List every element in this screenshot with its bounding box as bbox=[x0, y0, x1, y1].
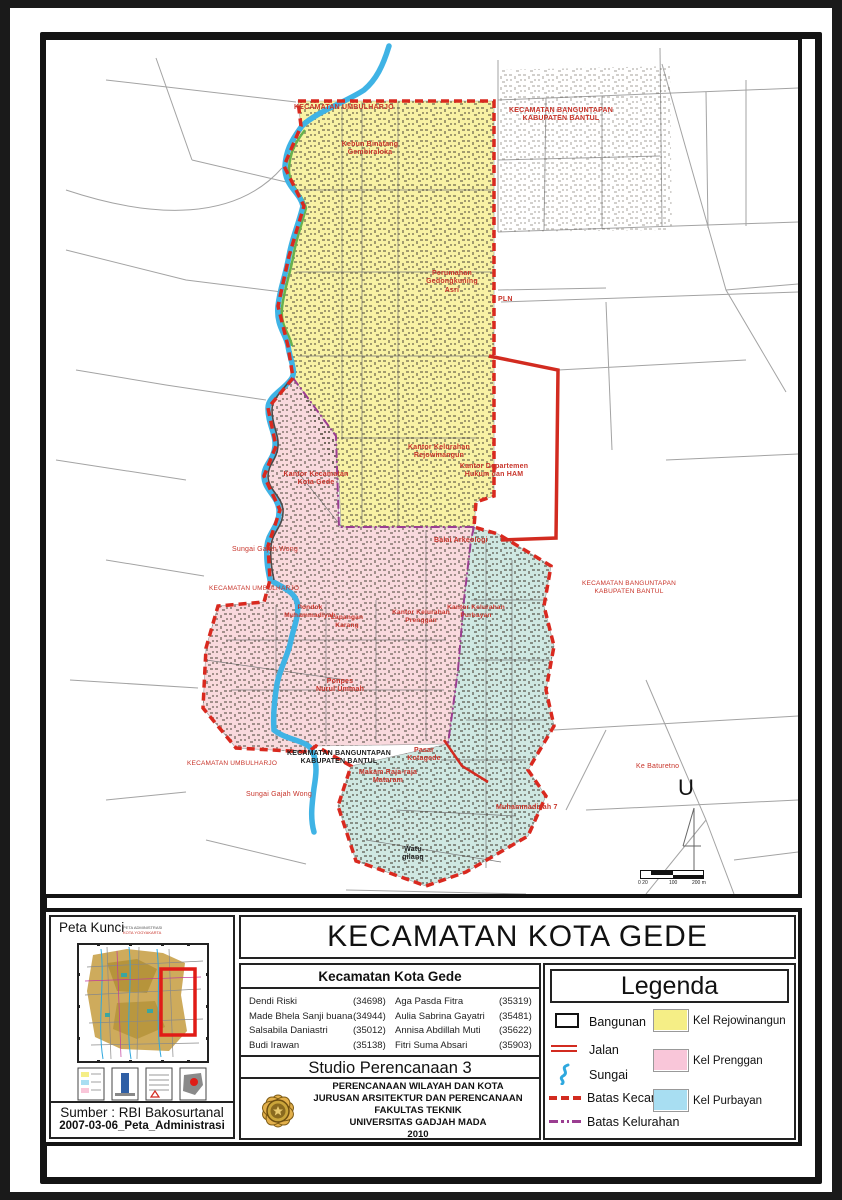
batas-kelurahan-symbol bbox=[549, 1120, 581, 1123]
legend-label-rejowinangun: Kel Rejowinangun bbox=[693, 1015, 786, 1027]
map-canvas: KECAMATAN UMBULHARJO KECAMATAN BANGUNTAP… bbox=[46, 40, 798, 894]
purbayan-swatch bbox=[653, 1089, 689, 1112]
student-id: (35481) bbox=[499, 1010, 541, 1025]
paper-sheet: KECAMATAN UMBULHARJO KECAMATAN BANGUNTAP… bbox=[10, 8, 832, 1192]
map-label: Kantor Kelurahan Prenggan bbox=[392, 609, 450, 625]
map-label: KECAMATAN UMBULHARJO bbox=[294, 104, 394, 112]
map-label: KECAMATAN BANGUNTAPAN KABUPATEN BANTUL bbox=[582, 580, 676, 596]
student-name: Aulia Sabrina Gayatri bbox=[395, 1010, 499, 1025]
student-id: (35622) bbox=[499, 1024, 541, 1039]
map-label: Sungai Gajah Wong bbox=[232, 546, 298, 554]
legend-label-batas-kelurahan: Batas Kelurahan bbox=[587, 1115, 679, 1129]
map-label: KECAMATAN BANGUNTAPAN KABUPATEN BANTUL bbox=[287, 750, 391, 767]
map-label: PLN bbox=[498, 296, 513, 304]
map-label: KECAMATAN UMBULHARJO bbox=[209, 585, 299, 593]
north-arrow bbox=[683, 808, 701, 872]
map-label: Pasar Kotagede bbox=[407, 747, 441, 764]
group-title: Kecamatan Kota Gede bbox=[241, 965, 539, 989]
student-name: Aga Pasda Fitra bbox=[395, 995, 499, 1010]
prenggan-swatch bbox=[653, 1049, 689, 1072]
student-id: (35012) bbox=[353, 1024, 395, 1039]
map-label: KECAMATAN UMBULHARJO bbox=[187, 760, 277, 768]
map-area: KECAMATAN UMBULHARJO KECAMATAN BANGUNTAP… bbox=[42, 36, 802, 898]
map-label: Kantor Kelurahan Purbayan bbox=[447, 604, 505, 620]
legend-label-jalan: Jalan bbox=[589, 1043, 619, 1057]
batas-kecamatan-symbol bbox=[549, 1096, 581, 1100]
student-name: Salsabila Daniastri bbox=[249, 1024, 353, 1039]
map-title: KECAMATAN KOTA GEDE bbox=[327, 920, 708, 954]
key-map-thumbnails bbox=[77, 1067, 209, 1101]
map-label: Makam Raja-raja Mataram bbox=[359, 769, 417, 786]
map-label: Pondok Muhammadiyah bbox=[284, 604, 336, 620]
student-name: Budi Irawan bbox=[249, 1039, 353, 1054]
legend-label-prenggan: Kel Prenggan bbox=[693, 1055, 763, 1067]
key-map-subtitle: PETA ADMINISTRASI KOTA YOGYAKARTA bbox=[123, 926, 162, 936]
legend-header: Legenda bbox=[550, 969, 789, 1003]
legend-label-sungai: Sungai bbox=[589, 1068, 628, 1082]
map-label: Kantor Kecamatan Kota Gede bbox=[283, 471, 348, 488]
key-map-source: Sumber : RBI Bakosurtanal 2007-03-06_Pet… bbox=[51, 1101, 233, 1137]
legend-panel: Legenda Bangunan Jalan Sungai Batas Keca… bbox=[543, 963, 796, 1140]
key-map-image bbox=[77, 943, 209, 1063]
student-id: (35138) bbox=[353, 1039, 395, 1054]
student-name: Dendi Riski bbox=[249, 995, 353, 1010]
bangunan-symbol bbox=[555, 1013, 579, 1028]
student-id: (35903) bbox=[499, 1039, 541, 1054]
map-label: Kantor Departemen Hukum dan HAM bbox=[460, 463, 528, 480]
map-label: Muhammadiyah 7 bbox=[496, 804, 558, 812]
student-id: (34698) bbox=[353, 995, 395, 1010]
students-table: Dendi Riski (34698) Aga Pasda Fitra (353… bbox=[241, 989, 539, 1055]
ugm-logo bbox=[249, 1083, 307, 1139]
map-label: Balai Arkeologi bbox=[434, 537, 488, 545]
title-block: Peta Kunci PETA ADMINISTRASI KOTA YOGYAK… bbox=[42, 908, 802, 1146]
rejowinangun-swatch bbox=[653, 1009, 689, 1032]
student-id: (35319) bbox=[499, 995, 541, 1010]
map-label: Kantor Kelurahan Rejowinangun bbox=[408, 444, 470, 461]
map-sheet-page: { "title_block": { "title": "KECAMATAN K… bbox=[0, 0, 842, 1200]
map-label: Lapangan Karang bbox=[331, 614, 363, 630]
scale-bar: 0 20 100 200 m bbox=[640, 870, 710, 890]
map-label: KECAMATAN BANGUNTAPAN KABUPATEN BANTUL bbox=[509, 107, 613, 124]
map-label: Ponpes Nurul Ummah bbox=[316, 678, 364, 695]
credits-cell: Kecamatan Kota Gede Dendi Riski (34698) … bbox=[239, 963, 541, 1140]
legend-label-bangunan: Bangunan bbox=[589, 1015, 646, 1029]
legend-label-purbayan: Kel Purbayan bbox=[693, 1095, 762, 1107]
map-label: Sungai Gajah Wong bbox=[246, 791, 312, 799]
sungai-symbol bbox=[557, 1063, 573, 1085]
student-name: Annisa Abdillah Muti bbox=[395, 1024, 499, 1039]
student-name: Fitri Suma Absari bbox=[395, 1039, 499, 1054]
scale-label: 200 m bbox=[692, 880, 706, 886]
map-label: Watu gilang bbox=[402, 846, 424, 863]
institution-text: PERENCANAAN WILAYAH DAN KOTA JURUSAN ARS… bbox=[307, 1081, 539, 1142]
map-label: Ke Baturetno bbox=[636, 763, 679, 771]
scale-label: 0 20 bbox=[638, 880, 648, 886]
jalan-symbol bbox=[551, 1045, 577, 1052]
north-label: U bbox=[678, 775, 694, 801]
map-title-cell: KECAMATAN KOTA GEDE bbox=[239, 915, 796, 959]
institution-row: PERENCANAAN WILAYAH DAN KOTA JURUSAN ARS… bbox=[241, 1079, 539, 1143]
student-id: (34944) bbox=[353, 1010, 395, 1025]
map-label: Perumahan Gedongkuning Asri bbox=[426, 270, 478, 295]
student-name: Made Bhela Sanji buana bbox=[249, 1010, 353, 1025]
key-map-panel: Peta Kunci PETA ADMINISTRASI KOTA YOGYAK… bbox=[49, 915, 235, 1139]
map-svg bbox=[46, 40, 798, 894]
scale-label: 100 bbox=[669, 880, 677, 886]
map-label: Kebun Binatang Gembiraloka bbox=[342, 141, 398, 158]
key-map-title: Peta Kunci bbox=[59, 920, 124, 935]
studio-title: Studio Perencanaan 3 bbox=[241, 1055, 539, 1079]
